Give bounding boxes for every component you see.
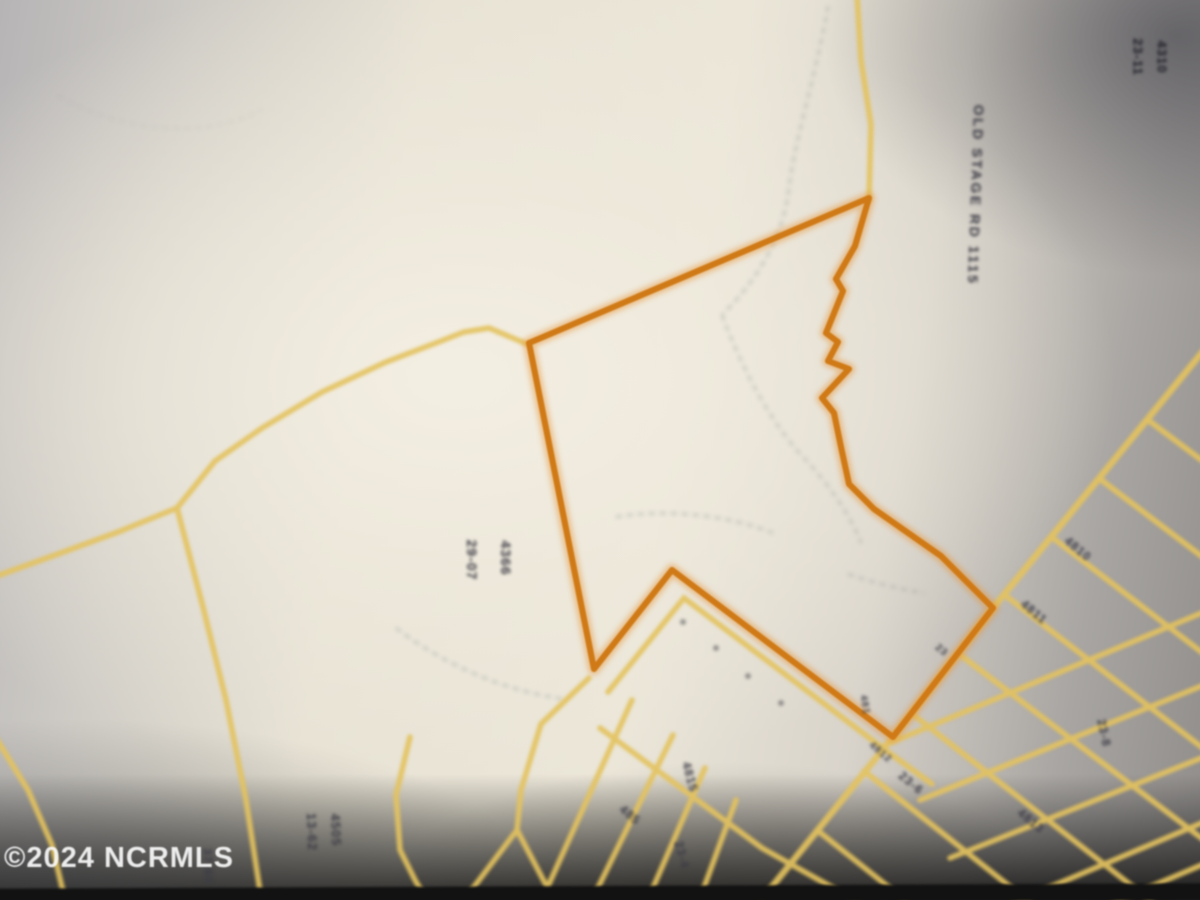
parcel-number-label: 4505 (329, 813, 343, 846)
parcel-boundary-lines (0, 0, 1200, 900)
parcel-number-label: 29-07 (465, 540, 479, 581)
parcel-number-label: 4366 (499, 540, 513, 575)
parcel-number-label: 4310 (1156, 41, 1169, 74)
parcel-number-label: 23-11 (1132, 38, 1145, 76)
contour-lines (58, 6, 924, 699)
watermark: ©2024 NCRMLS (4, 842, 234, 875)
plat-map-photo: 29-07 4366 13-62 4505 37-80 23-11 4310 4… (0, 0, 1200, 900)
parcel-number-label: 13-62 (305, 813, 319, 852)
parcel-map-canvas (0, 0, 1200, 900)
parcel-number-label: 481 (857, 694, 870, 715)
